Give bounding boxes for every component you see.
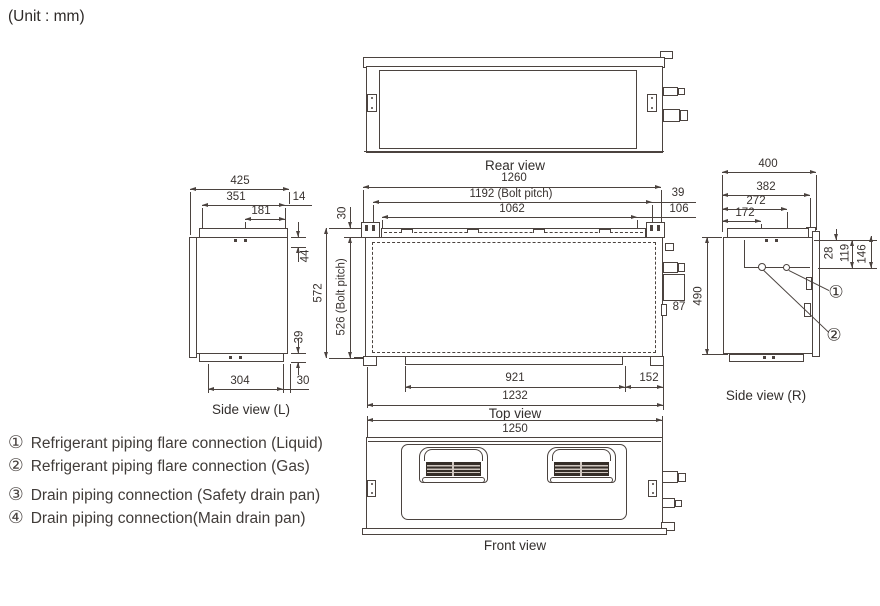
front-pipe-liquid <box>662 498 675 508</box>
ext-line <box>702 237 722 238</box>
rear-view-label: Rear view <box>485 159 545 173</box>
mark <box>763 356 766 359</box>
dim-line-425 <box>190 189 289 190</box>
dim-line-152 <box>625 387 663 388</box>
callout-2: ② <box>826 327 841 344</box>
ext-line <box>814 240 877 241</box>
dim-top-pipe-87: 87 <box>673 302 686 314</box>
ext-line <box>367 367 368 408</box>
dim-line-181 <box>245 219 285 220</box>
ext-line <box>810 198 811 228</box>
fan-grille-1-arc <box>424 449 483 461</box>
dim-front-width: 1250 <box>502 424 528 436</box>
ext-line <box>289 192 290 204</box>
bolt-slot <box>657 225 660 231</box>
ext-line <box>291 362 306 363</box>
bolt-slot <box>372 225 375 231</box>
dim-line-172 <box>722 221 761 222</box>
fan-grille-2-divider <box>580 462 582 476</box>
top-right-valve-box <box>663 274 685 301</box>
top-corner-bracket-tl <box>361 222 380 238</box>
sider-bottom-flange <box>729 354 804 362</box>
sidel-top-flange <box>199 228 288 238</box>
ext-line <box>329 358 366 359</box>
sidel-body <box>196 237 288 354</box>
unit-of-measure-label: (Unit : mm) <box>8 8 85 26</box>
ext-line <box>382 220 383 228</box>
dim-sidel-351: 351 <box>226 192 245 204</box>
dim-sidel-425: 425 <box>230 176 249 188</box>
dim-top-bottom-921: 921 <box>505 373 524 385</box>
dim-line-921 <box>405 387 625 388</box>
front-pipe-gas <box>662 471 678 483</box>
rear-pipe-liquid-nut <box>678 88 685 95</box>
dim-line-304 <box>208 389 283 390</box>
top-flange-tab <box>599 229 611 233</box>
dim-line-490 <box>707 237 708 355</box>
sider-top-flange <box>727 228 809 238</box>
legend-text-3: Drain piping connection (Safety drain pa… <box>31 487 321 504</box>
sider-inner-line <box>744 240 745 267</box>
dim-sider-172: 172 <box>735 208 754 220</box>
dim-top-right-39: 39 <box>672 188 685 200</box>
ext-line <box>290 364 291 393</box>
dim-top-bolt-pitch-depth: 526 (Bolt pitch) <box>336 258 348 335</box>
rear-pipe-liquid <box>663 87 678 96</box>
rear-inner-panel <box>379 70 637 149</box>
legend-text-1: Refrigerant piping flare connection (Liq… <box>31 435 323 452</box>
ext-line <box>818 268 877 269</box>
ext-line <box>285 208 286 228</box>
ext-line <box>291 247 306 248</box>
top-bottom-flange <box>405 356 623 365</box>
side-view-l-label: Side view (L) <box>212 403 290 417</box>
ext-line <box>202 208 203 228</box>
legend-text-4: Drain piping connection(Main drain pan) <box>31 510 306 527</box>
front-pipe-liquid-nut <box>675 500 682 507</box>
top-right-pipe-nut <box>678 263 685 272</box>
bolt-slot <box>650 225 653 231</box>
rear-left-bracket <box>367 94 377 112</box>
mark <box>229 356 232 359</box>
top-flange-tab <box>533 229 545 233</box>
legend-symbol-4: ④ <box>8 507 24 527</box>
ext-line <box>702 354 728 355</box>
ext-line <box>329 228 362 229</box>
bolt-slot <box>365 225 368 231</box>
dim-sidel-14: 14 <box>293 192 306 204</box>
mark <box>239 356 242 359</box>
legend-text-2: Refrigerant piping flare connection (Gas… <box>31 458 310 475</box>
top-right-edge-tab <box>661 304 667 316</box>
dim-line-572 <box>326 228 327 358</box>
front-base-flange <box>362 528 667 535</box>
mark <box>234 239 237 242</box>
dim-top-bottom-152: 152 <box>639 373 658 385</box>
dim-line-30-upper <box>350 207 351 228</box>
dim-sider-146: 146 <box>857 244 869 263</box>
mark <box>765 239 768 242</box>
dim-top-bolt-pitch-width: 1192 (Bolt pitch) <box>470 189 553 201</box>
dim-top-flange-30: 30 <box>337 207 349 220</box>
dim-top-total-width: 1260 <box>501 173 527 185</box>
ext-line <box>625 366 626 392</box>
dim-line-351 <box>202 205 285 206</box>
dim-line-39-upper <box>298 338 299 353</box>
top-flange-tab <box>467 229 479 233</box>
top-corner-bracket-br <box>650 356 664 366</box>
mark <box>244 239 247 242</box>
dim-top-depth: 572 <box>313 283 325 302</box>
dim-sider-119: 119 <box>840 244 852 262</box>
dim-line-106 <box>637 217 696 218</box>
ext-line <box>662 416 663 437</box>
rear-base-line <box>364 151 664 152</box>
front-left-bracket <box>367 480 376 497</box>
dim-line-30 <box>283 389 309 390</box>
ext-line <box>637 220 638 228</box>
top-corner-bracket-bl <box>363 356 377 366</box>
ext-line <box>363 190 364 222</box>
top-body-dashed-outline <box>372 242 656 353</box>
fan-grille-1-base <box>422 477 485 483</box>
dim-sidel-304: 304 <box>230 376 249 388</box>
legend-symbol-1: ① <box>8 432 24 452</box>
dim-line-119 <box>852 240 853 268</box>
dim-line-382 <box>722 195 810 196</box>
dim-top-bottom-total: 1232 <box>502 391 528 403</box>
dim-sider-272: 272 <box>746 196 765 208</box>
rear-pipe-gas-nut <box>680 110 688 121</box>
rear-right-bracket <box>647 94 657 112</box>
legend-item-4: ④Drain piping connection(Main drain pan) <box>8 507 306 528</box>
dim-line-146 <box>871 236 872 268</box>
ext-line <box>405 366 406 392</box>
dim-sidel-44: 44 <box>300 250 312 263</box>
ext-line <box>663 366 664 410</box>
ext-line <box>722 175 723 232</box>
mark <box>775 239 778 242</box>
front-inner-top-line <box>368 441 661 442</box>
front-view-label: Front view <box>484 539 546 553</box>
dim-line-400 <box>722 172 816 173</box>
ext-line <box>816 175 817 230</box>
ext-line <box>291 237 306 238</box>
ext-line <box>291 353 306 354</box>
dim-line-28-arrow <box>836 229 837 240</box>
mark <box>772 356 775 359</box>
dim-line-1062 <box>382 217 637 218</box>
legend-item-3: ③Drain piping connection (Safety drain p… <box>8 484 320 505</box>
dim-sider-490: 490 <box>693 286 705 305</box>
sider-front-panel <box>812 231 820 357</box>
technical-drawing-canvas: (Unit : mm) Rear view 1260 1192 (Bolt pi… <box>0 0 880 606</box>
top-view-label: Top view <box>489 407 542 421</box>
top-right-pipe <box>663 262 678 273</box>
fan-grille-2-arc <box>552 449 611 461</box>
legend-symbol-3: ③ <box>8 484 24 504</box>
top-right-hook <box>665 243 674 251</box>
front-right-bracket <box>648 480 657 497</box>
legend-item-1: ①Refrigerant piping flare connection (Li… <box>8 432 323 453</box>
dim-line-44-lower <box>298 247 299 262</box>
sider-pipe-line <box>744 267 810 268</box>
dim-sidel-39: 39 <box>294 331 306 344</box>
dim-sidel-181: 181 <box>251 206 270 218</box>
front-pipe-gas-nut <box>678 473 686 482</box>
callout-1: ① <box>828 284 843 301</box>
legend-item-2: ②Refrigerant piping flare connection (Ga… <box>8 455 310 476</box>
dim-line-39-lower <box>298 362 299 375</box>
dim-top-right-106: 106 <box>669 204 688 216</box>
top-flange-tab <box>401 229 413 233</box>
top-corner-bracket-tr <box>646 222 665 238</box>
fan-grille-1-divider <box>452 462 454 476</box>
dim-line-1250 <box>367 420 662 421</box>
fan-grille-2-base <box>550 477 613 483</box>
dim-line-526 <box>350 237 351 358</box>
dim-top-inner-width: 1062 <box>499 204 525 216</box>
sider-body <box>723 237 813 354</box>
dim-sider-28: 28 <box>824 247 836 260</box>
side-view-r-label: Side view (R) <box>726 389 806 403</box>
dim-line-14 <box>285 205 312 206</box>
dim-line-44-upper <box>298 222 299 237</box>
legend-symbol-2: ② <box>8 455 24 475</box>
dim-sidel-30: 30 <box>297 376 310 388</box>
dim-sider-382: 382 <box>756 182 775 194</box>
dim-sider-400: 400 <box>758 159 777 171</box>
ext-line <box>367 416 368 437</box>
rear-pipe-gas <box>663 109 680 122</box>
ext-line <box>208 364 209 393</box>
ext-line <box>190 192 191 235</box>
